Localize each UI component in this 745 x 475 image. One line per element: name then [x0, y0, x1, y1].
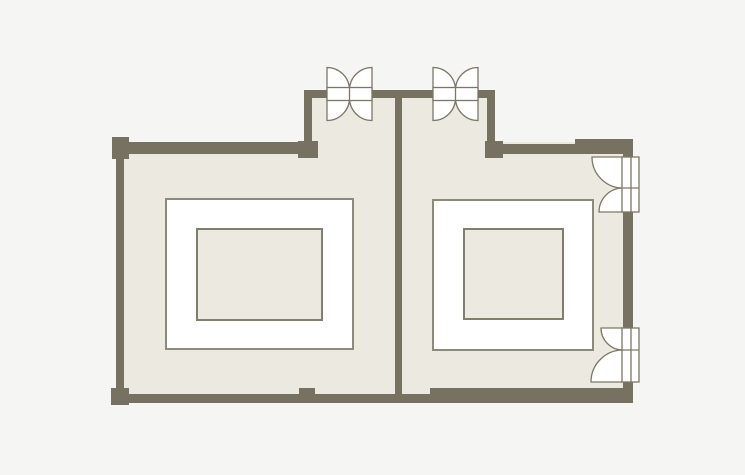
pillar-bottom-center [299, 388, 315, 403]
wall-bottom-left [112, 394, 430, 403]
wall-top-left [116, 142, 318, 154]
pillar-vestibule-left [298, 141, 318, 158]
table-right-inner[interactable] [464, 229, 563, 319]
floor-plan-canvas [0, 0, 745, 475]
pillar-bottom-left [111, 388, 129, 405]
wall-bottom-right-thick [430, 388, 633, 403]
table-left-inner[interactable] [197, 229, 322, 320]
wall-divider [395, 98, 402, 403]
wall-left [116, 154, 124, 394]
pillar-vestibule-right [485, 141, 503, 158]
pillar-top-left [112, 137, 129, 159]
wall-right-mid [623, 212, 633, 328]
floor-plan-svg [0, 0, 745, 475]
wall-top-right [495, 144, 575, 154]
wall-right-upper [623, 139, 633, 157]
